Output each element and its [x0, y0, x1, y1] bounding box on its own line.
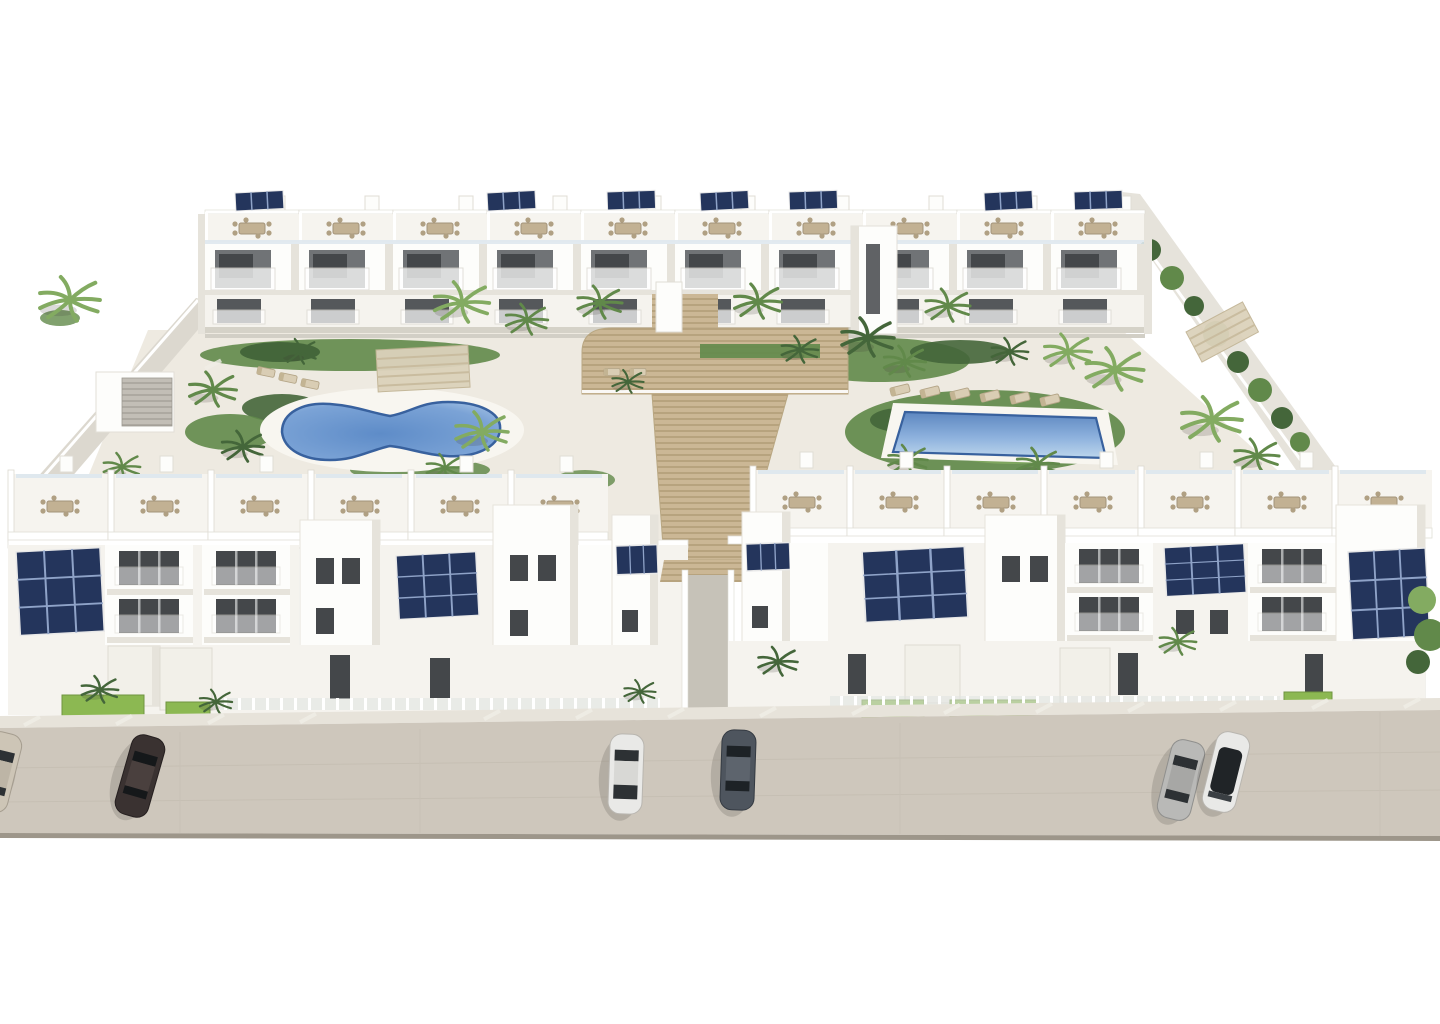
car-windshield: [614, 750, 638, 762]
hedge: [1406, 650, 1430, 674]
hedge: [1271, 407, 1293, 429]
front-right-block: [728, 452, 1440, 718]
solar-panel-array: [607, 190, 656, 210]
rear-apartment-module: [1051, 196, 1145, 333]
solar-panel-array: [746, 542, 790, 570]
solar-panel-array: [396, 552, 479, 619]
render-canvas: [0, 0, 1440, 1024]
pool-water: [893, 412, 1106, 458]
window: [622, 610, 638, 632]
garage-shade: [152, 646, 160, 706]
window: [510, 555, 528, 581]
solar-panel-array: [16, 548, 104, 636]
hedge: [1184, 296, 1204, 316]
window: [1002, 556, 1020, 582]
window: [1176, 610, 1194, 634]
facade-infill: [790, 543, 828, 641]
solar-panel-array: [984, 190, 1033, 210]
hedge: [1248, 378, 1272, 402]
hedge: [1290, 432, 1310, 452]
window: [316, 608, 334, 634]
chimney: [1300, 452, 1313, 468]
solar-panel-array: [1074, 190, 1123, 210]
window: [316, 558, 334, 584]
chimney: [1100, 452, 1113, 468]
architectural-render: [0, 0, 1440, 1024]
roof-terrace: [1235, 466, 1335, 538]
pergola-shed: [122, 378, 172, 426]
rear-central-tower: [851, 226, 897, 334]
car-roof: [614, 761, 639, 786]
car-rear-window: [613, 785, 637, 800]
solar-panel-array: [616, 545, 658, 575]
chimney: [900, 452, 913, 468]
chimney: [160, 456, 173, 472]
roof-terrace: [208, 470, 308, 542]
bridge-pier: [656, 282, 682, 332]
roof-terrace: [847, 466, 947, 538]
hedge: [1408, 586, 1436, 614]
rear-apartment-module: [205, 196, 299, 333]
entrance-door: [1118, 653, 1138, 695]
chimney: [800, 452, 813, 468]
pergola: [376, 345, 470, 392]
car-rear-window: [725, 781, 749, 792]
entrance-door: [848, 654, 866, 694]
rear-right-endcap: [1144, 214, 1152, 334]
chimney: [260, 456, 273, 472]
hedge: [1227, 351, 1249, 373]
hedge: [1160, 266, 1184, 290]
chimney: [560, 456, 573, 472]
garage-box: [905, 645, 960, 703]
car-roof: [726, 757, 751, 782]
passage-floor: [688, 575, 728, 715]
rear-left-endcap: [198, 214, 206, 334]
garage-box: [160, 648, 212, 710]
solar-panel-array: [789, 190, 838, 210]
roof-terrace: [108, 470, 208, 542]
garden-fence: [220, 698, 660, 710]
entrance-door: [430, 658, 450, 698]
roof-terrace: [1138, 466, 1238, 538]
facade-bay: [1248, 543, 1345, 643]
rear-apartment-module: [957, 196, 1051, 333]
facade-bay: [1065, 543, 1162, 643]
window: [752, 606, 768, 628]
roof-terrace: [8, 470, 108, 542]
window: [1210, 610, 1228, 634]
window: [510, 610, 528, 636]
facade-bay: [105, 545, 202, 645]
entrance-door: [1305, 654, 1323, 694]
car-windshield: [726, 746, 750, 758]
window: [1030, 556, 1048, 582]
chimney: [60, 456, 73, 472]
solar-panel-array: [1164, 544, 1246, 597]
palm-tree: [40, 277, 100, 321]
rear-apartment-module: [299, 196, 393, 333]
rear-apartment-module: [769, 196, 863, 333]
solar-panel-array: [487, 190, 536, 210]
facade-bay: [202, 545, 299, 645]
chimney: [1200, 452, 1213, 468]
stair-slot: [866, 244, 880, 314]
tower-shade: [851, 226, 859, 334]
sun-lounger: [604, 369, 620, 376]
window: [342, 558, 360, 584]
chimney: [460, 456, 473, 472]
solar-panel-array: [235, 190, 284, 210]
stairs-handrail: [582, 390, 848, 393]
garage-box: [1060, 648, 1110, 703]
window: [538, 555, 556, 581]
passage-wall: [682, 570, 688, 715]
solar-panel-array: [862, 547, 968, 623]
front-parapet: [728, 536, 1425, 544]
entrance-door: [330, 655, 350, 699]
facade-infill: [578, 545, 612, 645]
solar-panel-array: [700, 190, 749, 210]
front-left-block: [8, 456, 688, 718]
stairs-top-band: [582, 328, 848, 394]
